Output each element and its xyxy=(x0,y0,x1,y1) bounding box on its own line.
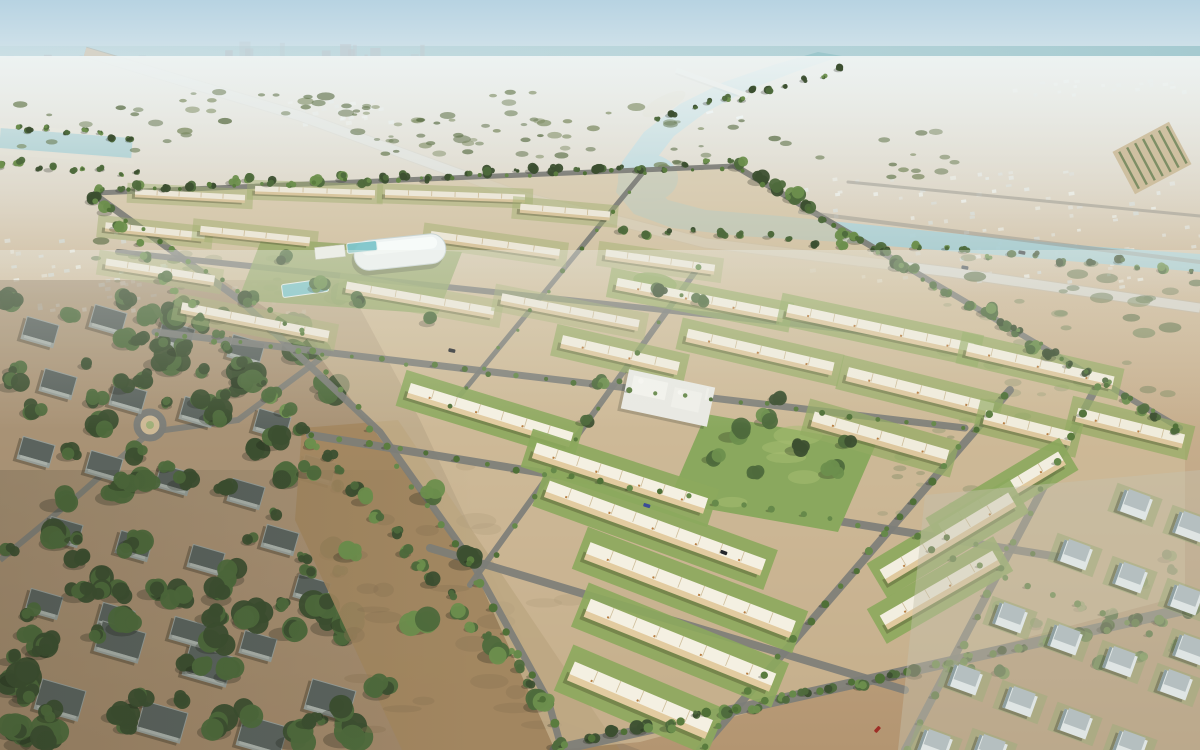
tree xyxy=(768,231,774,237)
palm-tree xyxy=(848,679,855,686)
desert-shrub xyxy=(432,151,446,157)
desert-shrub xyxy=(281,111,291,115)
tree xyxy=(107,134,114,141)
palm-tree xyxy=(542,472,547,477)
palm-tree xyxy=(485,462,490,467)
palm-tree xyxy=(627,485,633,491)
tree xyxy=(618,227,625,234)
palm-tree xyxy=(1054,458,1062,466)
palm-tree xyxy=(644,723,654,733)
desert-shrub xyxy=(738,119,745,122)
palm-tree xyxy=(785,194,791,200)
tree xyxy=(641,230,650,239)
palm-tree xyxy=(611,210,615,214)
tree xyxy=(49,162,57,170)
tree xyxy=(341,172,347,178)
desert-shrub xyxy=(207,98,217,102)
palm-tree xyxy=(677,717,685,725)
palm-tree xyxy=(761,697,769,705)
desert-shrub xyxy=(148,120,163,127)
palm-tree xyxy=(838,583,843,588)
tree xyxy=(445,174,450,179)
palm-tree xyxy=(107,208,111,212)
tree xyxy=(118,186,123,191)
palm-tree xyxy=(92,198,98,204)
palm-tree xyxy=(702,744,708,750)
palm-tree xyxy=(761,672,768,679)
tree xyxy=(693,106,696,109)
palm-tree xyxy=(157,239,162,244)
desert-shrub xyxy=(393,150,400,153)
desert-shrub xyxy=(929,129,943,135)
desert-shrub xyxy=(303,95,312,99)
desert-shrub xyxy=(212,89,226,95)
tree xyxy=(246,176,253,183)
desert-shrub xyxy=(416,118,424,122)
desert-shrub xyxy=(910,153,916,156)
tree xyxy=(821,75,824,78)
desert-shrub xyxy=(886,175,896,180)
palm-tree xyxy=(453,456,460,463)
palm-tree xyxy=(628,191,631,194)
desert-shrub xyxy=(385,139,393,143)
palm-tree xyxy=(686,493,691,498)
tree xyxy=(514,660,525,671)
tree xyxy=(98,131,101,134)
desert-shrub xyxy=(502,99,517,106)
tree xyxy=(268,180,274,186)
desert-shrub xyxy=(537,134,544,137)
desert-shrub xyxy=(663,119,677,125)
palm-tree xyxy=(396,178,401,183)
palm-tree xyxy=(828,516,833,521)
tree xyxy=(803,79,807,83)
palm-tree xyxy=(550,719,559,728)
palm-tree xyxy=(308,432,314,438)
palm-tree xyxy=(478,173,482,177)
palm-tree xyxy=(423,450,428,455)
desert-shrub xyxy=(362,104,371,108)
desert-shrub xyxy=(350,128,365,135)
tree xyxy=(577,167,580,170)
tree xyxy=(691,229,694,232)
palm-tree xyxy=(855,236,860,241)
tree xyxy=(911,242,918,249)
desert-shrub xyxy=(433,122,440,125)
tree xyxy=(16,158,22,164)
palm-tree xyxy=(897,513,904,520)
tree xyxy=(818,216,825,223)
aerial-render-canvas xyxy=(0,0,1200,750)
palm-tree xyxy=(691,168,694,171)
palm-tree xyxy=(398,446,403,451)
desert-shrub xyxy=(529,91,537,95)
palm-tree xyxy=(701,708,711,718)
palm-tree xyxy=(941,463,947,469)
palm-tree xyxy=(539,696,545,702)
desert-shrub xyxy=(93,237,110,244)
palm-tree xyxy=(260,182,264,186)
palm-tree xyxy=(855,523,860,528)
tree xyxy=(741,96,745,100)
palm-tree xyxy=(512,523,518,529)
lawn-patch xyxy=(788,470,820,484)
desert-shrub xyxy=(297,98,313,105)
desert-shrub xyxy=(475,142,484,146)
palm-tree xyxy=(775,654,781,660)
palm-tree xyxy=(574,437,578,441)
desert-shrub xyxy=(130,112,139,116)
tree xyxy=(706,101,710,105)
desert-shrub xyxy=(79,121,93,127)
desert-shrub xyxy=(560,146,571,151)
tree xyxy=(616,166,621,171)
palm-tree xyxy=(910,498,917,505)
palm-tree xyxy=(807,618,815,626)
palm-tree xyxy=(720,167,725,172)
palm-tree xyxy=(286,183,291,188)
tree xyxy=(132,180,141,189)
palm-tree xyxy=(529,671,536,678)
tree xyxy=(162,184,167,189)
tree xyxy=(753,706,761,714)
desert-shrub xyxy=(698,127,704,130)
tree xyxy=(722,96,728,102)
tree xyxy=(681,162,686,167)
palm-tree xyxy=(384,443,391,450)
desert-shrub xyxy=(701,153,712,158)
desert-shrub xyxy=(587,125,600,131)
desert-shrub xyxy=(462,149,473,154)
desert-shrub xyxy=(185,106,200,113)
tree xyxy=(137,239,142,244)
palm-tree xyxy=(588,735,596,743)
desert-shrub xyxy=(563,119,573,123)
palm-tree xyxy=(312,180,316,184)
desert-shrub xyxy=(627,103,645,111)
palm-tree xyxy=(884,526,889,531)
tree xyxy=(706,159,710,163)
palm-tree xyxy=(865,547,873,555)
tree xyxy=(489,647,507,665)
tree xyxy=(788,236,792,240)
desert-shrub xyxy=(311,100,325,106)
palm-tree xyxy=(956,444,962,450)
palm-tree xyxy=(744,687,752,695)
palm-tree xyxy=(178,187,182,191)
tree xyxy=(137,169,140,172)
tree xyxy=(842,243,848,249)
tree xyxy=(82,128,86,132)
tree xyxy=(329,450,339,460)
desert-shrub xyxy=(493,129,501,133)
desert-shrub xyxy=(206,109,216,114)
tree xyxy=(137,445,147,455)
tree xyxy=(793,442,808,457)
palm-tree xyxy=(875,673,885,683)
desert-shrub xyxy=(352,113,357,115)
tree xyxy=(126,138,129,141)
palm-tree xyxy=(741,502,746,507)
desert-shrub xyxy=(562,134,572,138)
desert-shrub xyxy=(727,125,738,130)
tree xyxy=(712,448,726,462)
tree xyxy=(514,168,517,171)
palm-tree xyxy=(513,467,520,474)
desert-shrub xyxy=(889,163,897,167)
tree xyxy=(70,169,74,173)
palm-tree xyxy=(123,219,128,224)
palm-tree xyxy=(232,184,236,188)
palm-tree xyxy=(100,188,103,191)
palm-tree xyxy=(789,635,797,643)
tree xyxy=(115,221,124,230)
desert-shrub xyxy=(912,174,925,180)
palm-tree xyxy=(207,182,212,187)
desert-shrub xyxy=(530,118,539,122)
desert-shrub xyxy=(426,141,435,145)
palm-tree xyxy=(450,176,454,180)
tree xyxy=(483,167,492,176)
tree xyxy=(844,435,857,448)
desert-shrub xyxy=(768,136,780,142)
palm-tree xyxy=(597,478,604,485)
desert-shrub xyxy=(374,138,380,141)
palm-tree xyxy=(569,473,575,479)
tree xyxy=(81,167,84,170)
tree xyxy=(824,685,832,693)
desert-shrub xyxy=(554,152,568,158)
palm-tree xyxy=(928,477,936,485)
palm-tree xyxy=(532,494,537,499)
palm-tree xyxy=(494,552,500,558)
palm-tree xyxy=(489,603,498,612)
palm-tree xyxy=(715,723,721,729)
palm-tree xyxy=(505,173,509,177)
tree xyxy=(62,447,75,460)
palm-tree xyxy=(914,533,921,540)
tree xyxy=(119,172,123,176)
palm-tree xyxy=(854,568,860,574)
desert-shrub xyxy=(394,122,403,126)
tree xyxy=(16,125,21,130)
tree xyxy=(29,128,33,132)
tree xyxy=(810,241,817,248)
tree xyxy=(97,166,102,171)
desert-shrub xyxy=(505,90,516,95)
desert-shrub xyxy=(670,147,677,150)
palm-tree xyxy=(551,467,557,473)
palm-tree xyxy=(637,166,641,170)
tree xyxy=(749,86,756,93)
desert-shrub xyxy=(915,130,927,136)
desert-shrub xyxy=(911,169,921,173)
desert-shrub xyxy=(481,124,490,128)
palm-tree xyxy=(336,436,342,442)
tree xyxy=(249,448,262,461)
desert-shrub xyxy=(605,112,611,115)
desert-shrub xyxy=(371,105,380,109)
palm-tree xyxy=(816,687,824,695)
tree xyxy=(383,174,389,180)
desert-shrub xyxy=(338,110,354,117)
desert-shrub xyxy=(301,105,311,110)
desert-shrub xyxy=(489,94,497,98)
palm-tree xyxy=(712,500,719,507)
palm-tree xyxy=(621,728,628,735)
palm-tree xyxy=(662,168,667,173)
palm-tree xyxy=(513,650,522,659)
desert-shrub xyxy=(273,93,280,96)
desert-shrub xyxy=(133,107,144,112)
palm-tree xyxy=(420,176,423,179)
desert-shrub xyxy=(698,145,703,147)
desert-shrub xyxy=(504,110,517,116)
tree xyxy=(64,130,69,135)
desert-shrub xyxy=(130,148,141,153)
desert-shrub xyxy=(536,155,544,159)
tree xyxy=(766,87,773,94)
desert-shrub xyxy=(516,151,529,157)
desert-shrub xyxy=(46,139,58,144)
palm-tree xyxy=(142,227,146,231)
desert-shrub xyxy=(898,167,909,172)
desert-shrub xyxy=(586,147,596,152)
palm-tree xyxy=(831,223,836,228)
tree xyxy=(730,159,734,163)
desert-shrub xyxy=(380,151,390,155)
tree xyxy=(529,164,539,174)
desert-shrub xyxy=(179,99,187,103)
palm-tree xyxy=(768,506,775,513)
desert-shrub xyxy=(218,118,232,124)
palm-tree xyxy=(801,511,807,517)
tree xyxy=(467,171,473,177)
desert-shrub xyxy=(341,104,352,109)
desert-shrub xyxy=(177,128,192,135)
desert-shrub xyxy=(363,112,370,115)
desert-shrub xyxy=(13,101,27,107)
desert-shrub xyxy=(258,93,265,96)
desert-shrub xyxy=(191,92,197,95)
tree xyxy=(945,246,949,250)
tree xyxy=(824,460,840,476)
desert-shrub xyxy=(780,141,792,146)
palm-tree xyxy=(153,187,157,191)
desert-shrub xyxy=(949,160,959,165)
palm-tree xyxy=(733,707,738,712)
tree xyxy=(38,166,43,171)
aerial-masterplan-render xyxy=(0,0,1200,750)
tree xyxy=(836,64,843,71)
palm-tree xyxy=(657,489,663,495)
tree xyxy=(211,183,216,188)
tree xyxy=(425,179,430,184)
palm-tree xyxy=(807,207,811,211)
desert-shrub xyxy=(939,155,950,160)
palm-tree xyxy=(367,178,372,183)
tree xyxy=(892,670,900,678)
tree xyxy=(185,182,194,191)
palm-tree xyxy=(760,182,766,188)
desert-shrub xyxy=(353,109,360,112)
tree xyxy=(887,672,893,678)
tree xyxy=(728,160,731,163)
foreground-shade xyxy=(0,470,480,750)
desert-shrub xyxy=(815,155,824,159)
tree xyxy=(594,164,603,173)
palm-tree xyxy=(394,464,399,469)
desert-shrub xyxy=(521,123,528,126)
desert-shrub xyxy=(46,113,52,116)
tree xyxy=(667,228,672,233)
tree xyxy=(801,688,808,695)
palm-tree xyxy=(821,600,829,608)
tree xyxy=(720,231,727,238)
palm-tree xyxy=(789,690,796,697)
desert-shrub xyxy=(469,138,477,142)
tree xyxy=(44,125,48,129)
desert-shrub xyxy=(547,132,562,139)
desert-shrub xyxy=(440,112,456,119)
desert-shrub xyxy=(116,105,126,110)
desert-shrub xyxy=(163,139,172,143)
tree xyxy=(610,726,618,734)
tree xyxy=(693,710,697,714)
tree xyxy=(842,231,848,237)
tree xyxy=(792,186,805,199)
palm-tree xyxy=(366,440,373,447)
desert-shrub xyxy=(878,137,890,142)
tree xyxy=(313,443,320,450)
palm-tree xyxy=(343,177,347,181)
desert-shrub xyxy=(17,144,27,148)
tree xyxy=(739,230,744,235)
palm-tree xyxy=(502,628,509,635)
tree xyxy=(859,681,867,689)
tree xyxy=(526,680,533,687)
palm-tree xyxy=(583,171,587,175)
tree xyxy=(629,720,644,735)
palm-tree xyxy=(741,169,745,173)
palm-tree xyxy=(126,187,130,191)
tree xyxy=(668,110,675,117)
palm-tree xyxy=(1067,433,1075,441)
tree xyxy=(291,182,297,188)
palm-tree xyxy=(609,168,614,173)
palm-tree xyxy=(595,228,599,232)
desert-shrub xyxy=(416,134,425,138)
tree xyxy=(738,157,748,167)
desert-shrub xyxy=(449,119,456,122)
palm-tree xyxy=(528,174,532,178)
palm-tree xyxy=(561,741,568,748)
palm-tree xyxy=(554,171,559,176)
desert-shrub xyxy=(317,92,335,100)
mid-haze xyxy=(0,250,1200,430)
tree xyxy=(783,85,787,89)
tree xyxy=(668,724,677,733)
palm-tree xyxy=(643,171,647,175)
desert-shrub xyxy=(934,168,948,174)
tree xyxy=(656,118,660,122)
desert-shrub xyxy=(388,135,393,137)
tree xyxy=(778,180,786,188)
tree xyxy=(752,465,764,477)
desert-shrub xyxy=(520,138,530,143)
